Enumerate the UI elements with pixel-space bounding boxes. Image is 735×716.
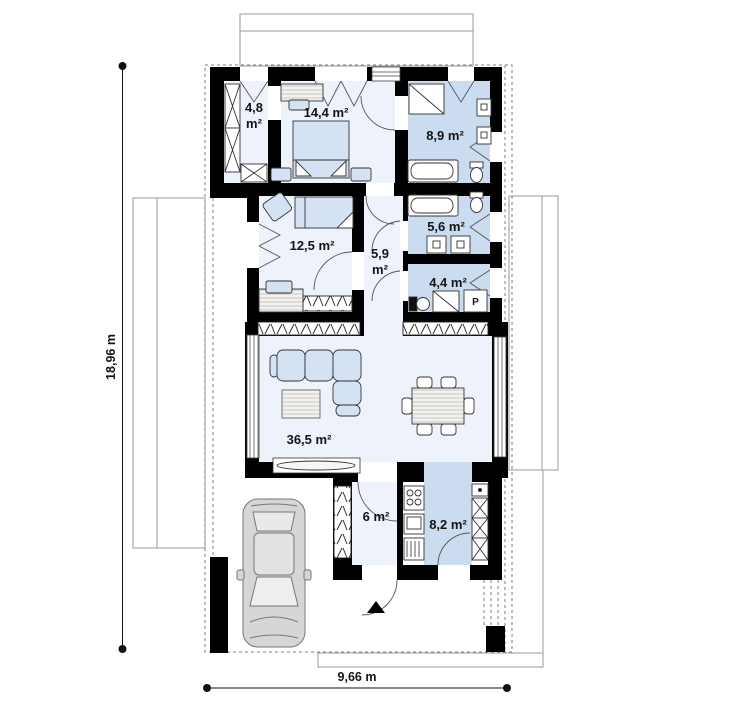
toilet-tank xyxy=(409,297,417,311)
door-bath-mid xyxy=(400,221,408,251)
door-bedroom-bath xyxy=(395,96,408,130)
sofa-seat xyxy=(305,350,333,381)
tv-sideboard xyxy=(277,461,355,470)
dining-table xyxy=(412,388,464,424)
coffee-table xyxy=(282,390,320,418)
entrance-arrow-icon xyxy=(367,601,385,613)
window-top-3 xyxy=(372,67,400,81)
washer-label: P xyxy=(472,297,479,308)
room-label-wardrobe-line1: 4,8 xyxy=(245,100,263,115)
car-mirror-right xyxy=(304,570,311,580)
top-terrace xyxy=(240,14,473,66)
floor-plan-drawing: 4,8 m² 14,4 m² 8,9 m² 12,5 m² 5,9 m² 5,6… xyxy=(0,0,735,716)
left-driveway xyxy=(133,198,205,548)
dining-chair xyxy=(464,398,474,414)
car-windshield xyxy=(250,577,298,606)
bottom-terrace-band xyxy=(318,653,543,667)
right-terrace xyxy=(509,196,558,470)
sofa-seat xyxy=(333,350,361,381)
dining-chair xyxy=(441,377,456,388)
room-label-kitchen: 8,2 m² xyxy=(429,517,467,532)
door-living-hall xyxy=(358,462,397,482)
door-bedroom-small xyxy=(352,252,364,290)
car-rear-window xyxy=(253,512,295,531)
room-label-bathroom-mid: 5,6 m² xyxy=(427,219,465,234)
window-right-bath-top xyxy=(490,132,502,162)
living-window-right xyxy=(494,337,506,457)
room-label-wardrobe-line2: m² xyxy=(246,116,263,131)
window-top-1 xyxy=(240,67,268,81)
room-label-corridor-line2: m² xyxy=(372,262,389,277)
door-kitchen-back xyxy=(438,565,470,580)
nightstand-left xyxy=(271,168,291,181)
toilet-bowl xyxy=(417,298,430,311)
dining-chair xyxy=(417,377,432,388)
car xyxy=(237,499,311,647)
door-corridor-top xyxy=(366,183,394,196)
window-top-2 xyxy=(315,67,367,81)
room-label-utility: 4,4 m² xyxy=(429,275,467,290)
room-label-bedroom-small: 12,5 m² xyxy=(290,238,335,253)
desk-chair xyxy=(266,281,292,293)
sofa-chaise xyxy=(333,381,361,405)
living-window-left xyxy=(247,335,259,458)
nightstand-right xyxy=(351,168,371,181)
door-entrance xyxy=(362,565,397,580)
room-label-bedroom-large: 14,4 m² xyxy=(304,105,349,120)
car-mirror-left xyxy=(237,570,244,580)
porch-pillar-right xyxy=(486,626,505,652)
door-utility xyxy=(400,271,408,301)
dining-chair xyxy=(402,398,412,414)
porch-pillar-left xyxy=(210,557,228,653)
dim-label-vertical: 18,96 m xyxy=(104,334,118,380)
window-right-utility xyxy=(490,268,502,298)
window-left-bedroom-small xyxy=(247,222,259,268)
wardrobe-band-bedroom-small xyxy=(303,296,352,311)
dining-chair xyxy=(417,424,432,435)
room-label-hall: 6 m² xyxy=(363,509,390,524)
room-label-corridor-line1: 5,9 xyxy=(371,246,389,261)
cooktop xyxy=(404,486,424,510)
hall-window xyxy=(334,486,351,558)
dim-label-horizontal: 9,66 m xyxy=(338,670,377,684)
pass-kitchen-living xyxy=(424,462,472,482)
window-right-bath-mid xyxy=(490,212,502,242)
clerestory-band-left xyxy=(258,322,360,335)
room-label-bathroom-top: 8,9 m² xyxy=(426,128,464,143)
clerestory-band-right xyxy=(403,322,488,335)
room-label-living: 36,5 m² xyxy=(287,432,332,447)
floor-plan-page: 4,8 m² 14,4 m² 8,9 m² 12,5 m² 5,9 m² 5,6… xyxy=(0,0,735,716)
car-roof xyxy=(254,533,294,575)
sofa-seat xyxy=(277,350,305,381)
dining-chair xyxy=(441,424,456,435)
window-top-4 xyxy=(448,67,474,81)
door-wardrobe-bedroom xyxy=(268,86,281,120)
desk xyxy=(281,84,323,101)
sofa-arm-bottom xyxy=(336,405,360,416)
